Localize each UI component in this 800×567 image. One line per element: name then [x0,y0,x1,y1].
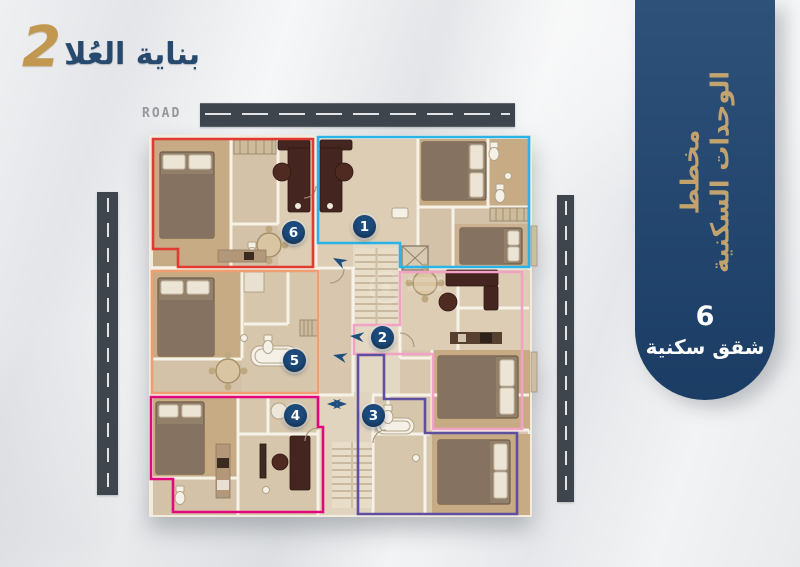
logo-edition-number: 2 [22,20,59,76]
bed-unit-6 [160,152,214,238]
banner-title-vertical: مخطط الوحدات السكنية [676,41,735,303]
apartment-count: 6 [635,301,775,332]
road-dash-line [565,201,567,496]
banner-title-line2: الوحدات السكنية [705,41,735,303]
stairs-lower [332,442,372,508]
bed-unit-4 [156,402,204,474]
bed-unit-1-second [460,228,522,264]
stairs-upper [355,248,398,324]
bed-unit-3 [438,440,510,504]
road-right [557,195,574,502]
banner-title-line1: مخطط [676,41,706,303]
road-top [200,103,515,127]
unit-badge-3: 3 [362,404,385,427]
unit-badge-5: 5 [283,349,306,372]
road-dash-line [205,113,510,115]
unit-badge-4: 4 [284,404,307,427]
road-left [97,192,118,495]
flyer-canvas: 2 بناية العُلا ROAD [0,0,800,567]
bed-unit-2 [438,356,518,418]
building-logo: 2 بناية العُلا [20,24,200,90]
apartment-count-label: شقق سكنية [635,335,775,359]
bed-unit-5 [158,278,214,356]
floor-plan: 1 2 3 4 5 6 [148,128,538,522]
unit-badge-2: 2 [371,326,394,349]
road-dash-line [107,198,109,489]
unit-badge-6: 6 [282,221,305,244]
side-banner: مخطط الوحدات السكنية 6 شقق سكنية [635,0,775,400]
unit-badge-1: 1 [353,215,376,238]
floor-plan-drawing [148,128,538,522]
road-label: ROAD [142,106,181,121]
bed-unit-1 [422,142,486,200]
logo-arabic-name: بناية العُلا [64,40,200,70]
